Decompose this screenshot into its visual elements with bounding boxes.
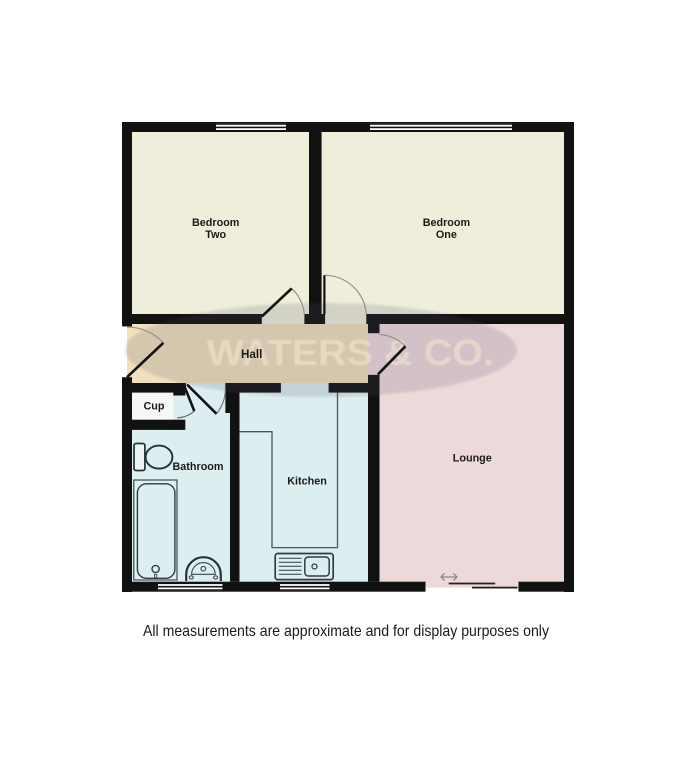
- svg-text:Bedroom: Bedroom: [192, 217, 239, 229]
- svg-text:Bedroom: Bedroom: [423, 217, 470, 229]
- svg-text:Kitchen: Kitchen: [287, 476, 327, 488]
- svg-text:Bathroom: Bathroom: [173, 461, 224, 473]
- svg-text:One: One: [436, 229, 457, 241]
- svg-text:Hall: Hall: [241, 348, 262, 361]
- svg-text:Lounge: Lounge: [453, 453, 492, 465]
- svg-text:Cup: Cup: [144, 401, 165, 413]
- svg-text:Two: Two: [205, 229, 226, 241]
- svg-text:All measurements are approxima: All measurements are approximate and for…: [143, 623, 549, 640]
